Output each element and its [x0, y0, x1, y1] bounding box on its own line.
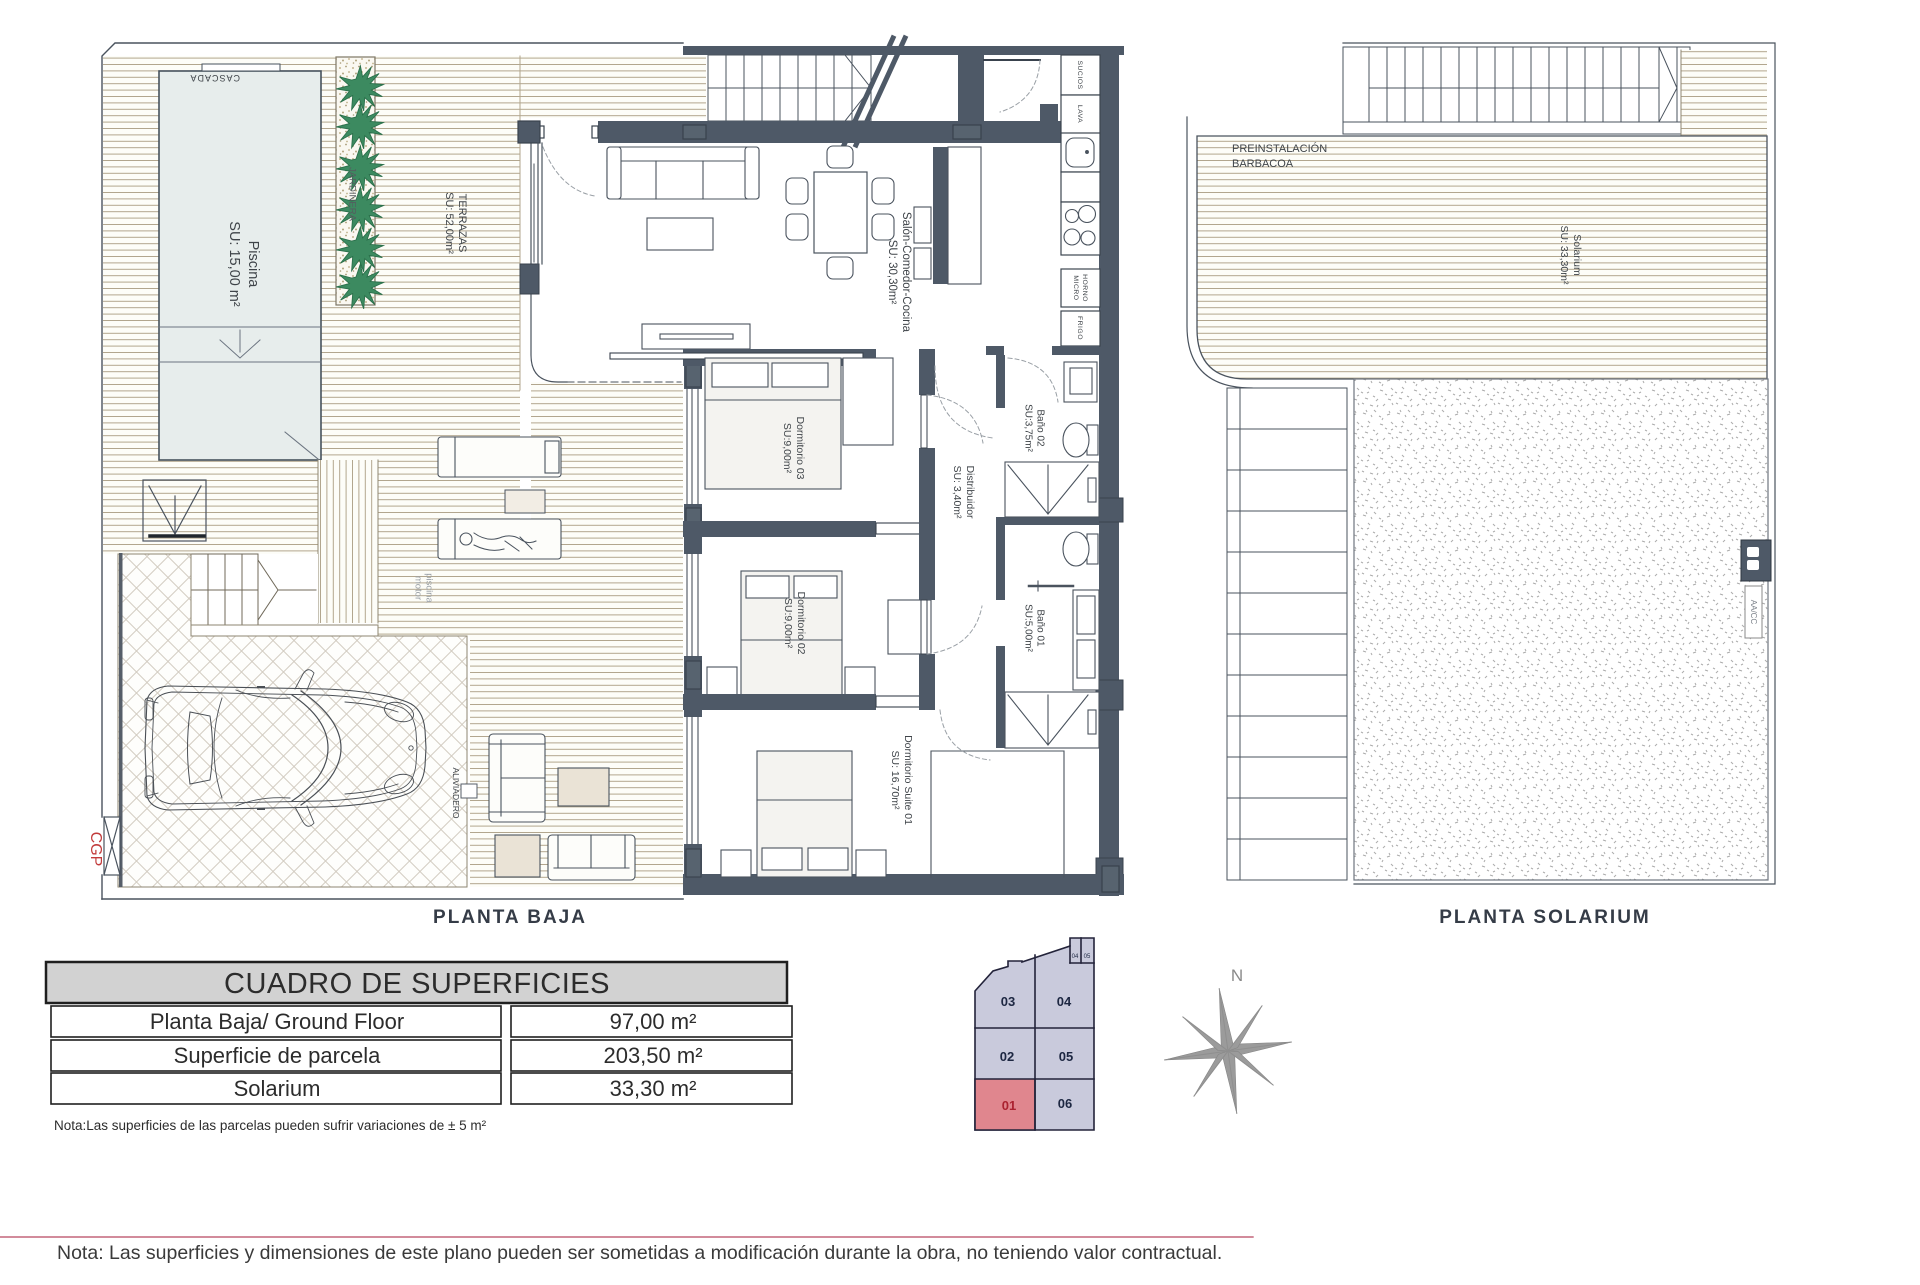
svg-text:PREINSTALACIÓN: PREINSTALACIÓN [1232, 142, 1327, 155]
svg-text:CGP: CGP [87, 832, 104, 867]
svg-text:05: 05 [1084, 954, 1091, 960]
svg-text:CASCADA: CASCADA [189, 73, 240, 83]
svg-text:piscina: piscina [423, 573, 434, 603]
svg-text:Solarium: Solarium [1571, 234, 1583, 276]
svg-text:04: 04 [1057, 994, 1072, 1009]
svg-text:MICRO: MICRO [1072, 275, 1079, 300]
svg-text:PLANTA BAJA: PLANTA BAJA [433, 907, 587, 928]
svg-text:AA/CC: AA/CC [1749, 600, 1758, 625]
svg-text:BARBACOA: BARBACOA [1232, 158, 1294, 170]
svg-text:SU:9,00m²: SU:9,00m² [782, 598, 794, 649]
svg-text:SU:3,75m²: SU:3,75m² [1022, 404, 1033, 452]
svg-text:Distribuidor: Distribuidor [964, 465, 976, 519]
svg-text:PLANTA SOLARIUM: PLANTA SOLARIUM [1439, 907, 1651, 928]
svg-text:02: 02 [1000, 1049, 1014, 1064]
svg-text:SU: 16,70m²: SU: 16,70m² [889, 751, 901, 810]
svg-text:01: 01 [1002, 1098, 1016, 1113]
svg-text:Baño 02: Baño 02 [1034, 409, 1045, 447]
svg-text:Dormitorio Suite 01: Dormitorio Suite 01 [902, 735, 914, 825]
svg-text:Baño 01: Baño 01 [1034, 609, 1045, 647]
svg-text:SU: 3,40m²: SU: 3,40m² [951, 465, 963, 519]
svg-text:06: 06 [1058, 1096, 1072, 1111]
svg-text:SU:9,00m²: SU:9,00m² [781, 423, 793, 474]
svg-text:Piscina: Piscina [245, 241, 261, 289]
svg-text:SU: 52,00m²: SU: 52,00m² [443, 192, 455, 254]
svg-text:203,50 m²: 203,50 m² [603, 1043, 702, 1068]
svg-text:Planta Baja/ Ground Floor: Planta Baja/ Ground Floor [150, 1009, 404, 1034]
svg-text:motor: motor [412, 576, 423, 600]
svg-text:04: 04 [1072, 954, 1079, 960]
svg-text:SUCIOS: SUCIOS [1076, 60, 1083, 89]
svg-text:SU: 33,30m²: SU: 33,30m² [1558, 226, 1570, 285]
svg-text:33,30 m²: 33,30 m² [610, 1076, 697, 1101]
svg-text:05: 05 [1059, 1049, 1073, 1064]
svg-text:LAVA: LAVA [1076, 105, 1083, 123]
svg-text:SU: 15,00 m²: SU: 15,00 m² [226, 221, 242, 307]
svg-text:TERRAZAS: TERRAZAS [456, 194, 468, 253]
svg-text:Solarium: Solarium [234, 1076, 321, 1101]
svg-text:Nota:Las superficies de las pa: Nota:Las superficies de las parcelas pue… [54, 1118, 487, 1133]
svg-text:FRIGO: FRIGO [1076, 316, 1083, 340]
svg-text:ALIVIADERO: ALIVIADERO [451, 767, 461, 818]
svg-text:CUADRO DE SUPERFICIES: CUADRO DE SUPERFICIES [224, 968, 610, 1000]
svg-text:N: N [1231, 966, 1243, 985]
svg-text:03: 03 [1001, 994, 1015, 1009]
svg-text:SU:5,00m²: SU:5,00m² [1022, 604, 1033, 652]
svg-text:SU: 30,30m²: SU: 30,30m² [886, 240, 898, 305]
svg-text:Dormitorio 02: Dormitorio 02 [795, 591, 807, 654]
svg-text:Salón-Comedor-Cocina: Salón-Comedor-Cocina [900, 212, 912, 333]
svg-text:HORNO: HORNO [1081, 274, 1088, 302]
svg-text:Dormitorio 03: Dormitorio 03 [794, 416, 806, 479]
svg-text:Superficie de parcela: Superficie de parcela [174, 1043, 381, 1068]
svg-text:Nota: Las superficies y dimens: Nota: Las superficies y dimensiones de e… [57, 1242, 1222, 1264]
svg-text:JARDINERA: JARDINERA [346, 167, 357, 222]
svg-text:97,00 m²: 97,00 m² [610, 1009, 697, 1034]
